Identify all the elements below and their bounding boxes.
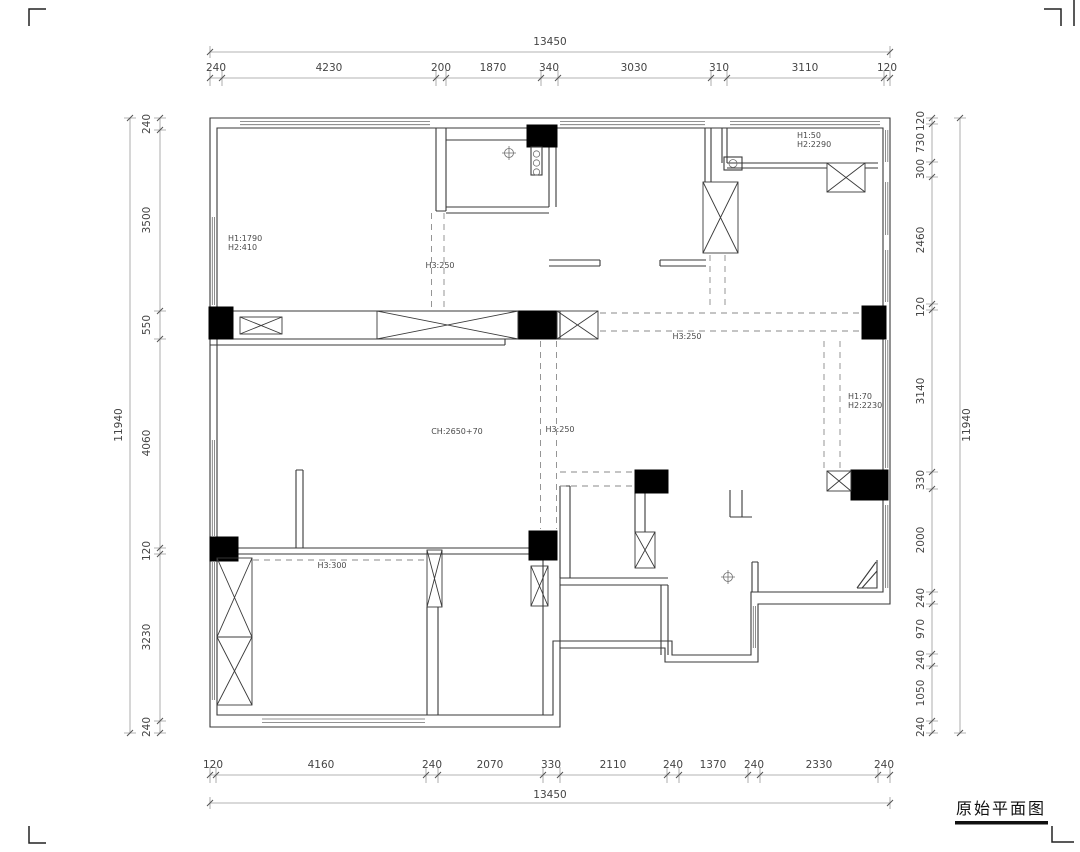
annotation-beam-entry: H3:250: [425, 261, 454, 270]
column: [862, 306, 886, 339]
hatch-box: [557, 311, 598, 339]
dim-bottom-seg-10: 240: [874, 759, 894, 771]
dim-left-seg-2: 550: [141, 315, 153, 335]
annotation-window-tr-h1: H1:50: [797, 131, 821, 140]
window-lines: [212, 121, 888, 722]
dim-left-seg-4: 120: [141, 541, 153, 561]
hatch-box: [217, 558, 252, 637]
dim-bottom-seg-9: 2330: [806, 759, 833, 771]
annotation-window-tr-h2: H2:2290: [797, 140, 831, 149]
corner-mark-top-right: [1044, 0, 1074, 26]
dim-bottom-seg-8: 240: [744, 759, 764, 771]
floor-plan: H1:1790 H2:410 H3:250 H1:50 H2:2290 H3:2…: [209, 118, 890, 727]
corner-mark-bottom-left: [29, 826, 46, 843]
floor-drain-icon: [502, 146, 516, 160]
dim-left-overall: 11940: [113, 408, 125, 441]
dim-top-seg-4: 340: [539, 62, 559, 74]
dim-right-seg-5: 3140: [915, 378, 927, 405]
dim-top-overall: 13450: [533, 36, 566, 48]
annotation-beam-mid: H3:250: [672, 332, 701, 341]
dim-top-seg-0: 240: [206, 62, 226, 74]
annotation-window-east-h2: H2:2230: [848, 401, 882, 410]
drawing-title: 原始平面图: [956, 799, 1046, 818]
dim-left-seg-0: 240: [141, 114, 153, 134]
dim-chain-right: 120 730 300 2460 120 3140 330 2000 240 9…: [915, 111, 973, 737]
annotation-window-east-h1: H1:70: [848, 392, 872, 401]
hatch-box: [703, 182, 738, 253]
dim-bottom-overall: 13450: [533, 789, 566, 801]
hatch-box: [217, 637, 252, 705]
floor-drain-icon: [721, 570, 735, 584]
hatch-box: [240, 317, 282, 334]
interior-walls: [210, 128, 878, 715]
dim-bottom-seg-1: 4160: [308, 759, 335, 771]
dim-right-seg-0: 120: [915, 111, 927, 131]
plan-annotations: H1:1790 H2:410 H3:250 H1:50 H2:2290 H3:2…: [228, 131, 882, 570]
annotation-window-tl-h1: H1:1790: [228, 234, 262, 243]
beam-hatch-boxes: [217, 163, 865, 705]
dim-bottom-seg-3: 2070: [477, 759, 504, 771]
annotation-beam-sw: H3:300: [317, 561, 346, 570]
dim-top-seg-8: 120: [877, 62, 897, 74]
annotation-ceiling-height: CH:2650+70: [431, 427, 483, 436]
annotation-window-tl-h2: H2:410: [228, 243, 257, 252]
dim-left-seg-3: 4060: [141, 430, 153, 457]
hatch-box: [827, 471, 851, 491]
column: [518, 311, 557, 339]
meter-box-icon: [531, 147, 542, 175]
dim-top-seg-3: 1870: [480, 62, 507, 74]
dim-right-seg-11: 1050: [915, 680, 927, 707]
corner-mark-top-left: [29, 9, 46, 26]
dim-right-overall: 11940: [961, 408, 973, 441]
dim-right-seg-7: 2000: [915, 527, 927, 554]
dim-top-seg-2: 200: [431, 62, 451, 74]
dim-right-seg-12: 240: [915, 717, 927, 737]
column: [527, 125, 557, 147]
dim-bottom-seg-6: 240: [663, 759, 683, 771]
drawing-sheet: 13450 240 4230 200 1870 340 3030 310 311…: [0, 0, 1080, 852]
dim-chain-top: 13450 240 4230 200 1870 340 3030 310 311…: [206, 36, 897, 86]
dim-chain-left: 11940 240 3500 550 4060 120 3230 240: [113, 114, 166, 737]
hatch-box: [377, 311, 518, 339]
hatch-box: [531, 566, 548, 606]
title-block: 原始平面图: [955, 799, 1048, 825]
dim-right-seg-4: 120: [915, 297, 927, 317]
dim-chain-bottom: 120 4160 240 2070 330 2110 240 1370 240 …: [203, 759, 894, 809]
dim-left-seg-1: 3500: [141, 207, 153, 234]
column: [529, 531, 557, 560]
dim-right-seg-6: 330: [915, 470, 927, 490]
column: [210, 537, 238, 561]
floor-plan-canvas: 13450 240 4230 200 1870 340 3030 310 311…: [0, 0, 1080, 852]
corner-mark-bottom-right: [1052, 826, 1074, 842]
dim-right-seg-1: 730: [915, 133, 927, 153]
dim-top-seg-1: 4230: [316, 62, 343, 74]
beam-dashed-lines: [253, 213, 860, 560]
dim-right-seg-3: 2460: [915, 227, 927, 254]
dim-right-seg-2: 300: [915, 159, 927, 179]
dim-right-seg-10: 240: [915, 650, 927, 670]
dim-top-seg-7: 3110: [792, 62, 819, 74]
title-underline: [955, 821, 1048, 825]
column: [851, 470, 888, 500]
dim-bottom-seg-0: 120: [203, 759, 223, 771]
hatch-box: [827, 163, 865, 192]
fixture-symbols: [502, 146, 742, 584]
dim-bottom-seg-7: 1370: [700, 759, 727, 771]
annotation-beam-hall: H3:250: [545, 425, 574, 434]
dim-bottom-seg-4: 330: [541, 759, 561, 771]
hatch-box: [635, 532, 655, 568]
hatch-box: [427, 550, 442, 607]
column: [635, 470, 668, 493]
column: [209, 307, 233, 339]
dim-bottom-seg-5: 2110: [600, 759, 627, 771]
dim-left-seg-5: 3230: [141, 624, 153, 651]
dim-top-seg-5: 3030: [621, 62, 648, 74]
dim-left-seg-6: 240: [141, 717, 153, 737]
dim-right-seg-8: 240: [915, 588, 927, 608]
dim-top-seg-6: 310: [709, 62, 729, 74]
dim-bottom-seg-2: 240: [422, 759, 442, 771]
exterior-walls: [210, 118, 890, 727]
dim-right-seg-9: 970: [915, 619, 927, 639]
